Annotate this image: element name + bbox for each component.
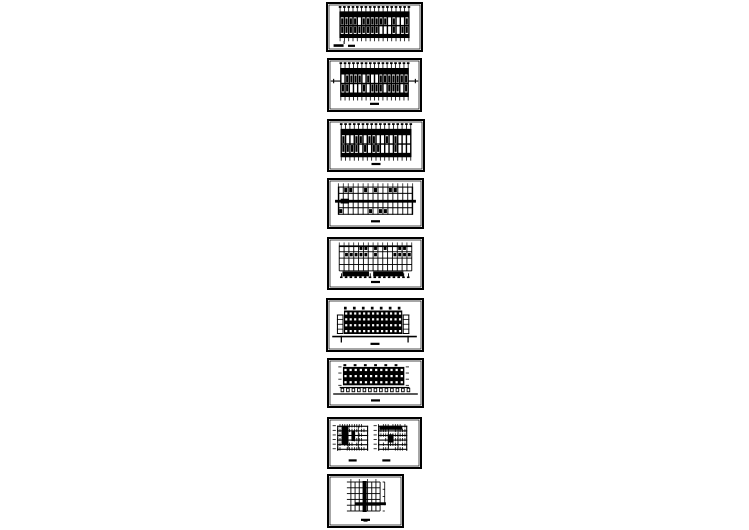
- sheet-6-drawing: [328, 300, 422, 350]
- sheet-2-drawing: [329, 60, 420, 110]
- sheet-1-drawing: [328, 4, 421, 50]
- sheet-3: [327, 119, 425, 172]
- sheet-1: [326, 2, 423, 52]
- sheet-9: [327, 474, 404, 528]
- sheet-4-drawing: [329, 180, 422, 227]
- sheet-5-drawing: [329, 239, 422, 288]
- sheet-3-drawing: [329, 121, 423, 170]
- sheet-8-drawing: [329, 419, 420, 467]
- sheet-6: [326, 298, 424, 352]
- sheet-7: [327, 358, 424, 408]
- sheet-4: [327, 178, 424, 229]
- sheet-7-drawing: [329, 360, 422, 406]
- sheet-2: [327, 58, 422, 112]
- sheet-8: [327, 417, 422, 469]
- canvas: [0, 0, 749, 530]
- sheet-9-drawing: [329, 476, 402, 526]
- sheet-5: [327, 237, 424, 290]
